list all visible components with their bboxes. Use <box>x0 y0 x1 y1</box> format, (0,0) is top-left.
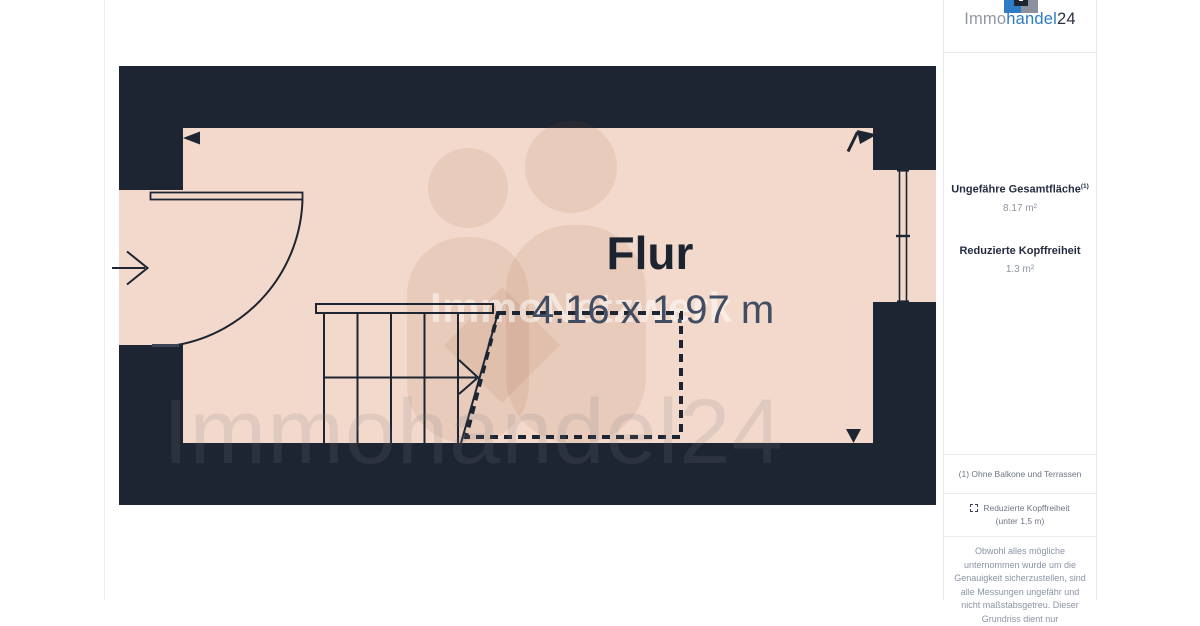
headroom-value: 1.3 m² <box>944 264 1096 275</box>
logo-text-handel: handel <box>1006 10 1057 28</box>
logo-text: Immohandel24 <box>944 10 1096 29</box>
dashed-square-icon <box>970 504 978 512</box>
total-area-label: Ungefähre Gesamtfläche(1) <box>944 52 1096 196</box>
disclaimer-text: Obwohl alles mögliche unternommen wurde … <box>953 545 1087 626</box>
page-divider-line <box>104 0 105 600</box>
disclaimer: Obwohl alles mögliche unternommen wurde … <box>944 536 1096 600</box>
watermark-immohandel24: Immohandel24 <box>163 380 923 485</box>
total-area-value: 8.17 m² <box>944 203 1096 214</box>
legend-sub-label: (unter 1,5 m) <box>944 516 1096 526</box>
window-opening <box>873 170 936 302</box>
legend-reduced-headroom: Reduzierte Kopffreiheit (unter 1,5 m) <box>944 493 1096 536</box>
total-area-footnote-ref: (1) <box>1081 183 1089 190</box>
sidebar-info: Ungefähre Gesamtfläche(1) 8.17 m² Reduzi… <box>944 52 1096 454</box>
room-dimensions: 4.16 x 1.97 m <box>498 288 808 333</box>
sidebar: Immohandel24 Ungefähre Gesamtfläche(1) 8… <box>943 0 1097 600</box>
footnote-balconies-text: (1) Ohne Balkone und Terrassen <box>959 469 1082 479</box>
headroom-label: Reduzierte Kopffreiheit <box>944 245 1096 257</box>
door-opening <box>119 190 183 345</box>
logo: Immohandel24 <box>944 0 1096 53</box>
room-label: Flur <box>560 226 740 280</box>
logo-text-immo: Immo <box>964 10 1006 28</box>
footnote-balconies: (1) Ohne Balkone und Terrassen <box>944 454 1096 493</box>
logo-text-24: 24 <box>1057 10 1076 28</box>
legend-label: Reduzierte Kopffreiheit <box>983 503 1069 513</box>
